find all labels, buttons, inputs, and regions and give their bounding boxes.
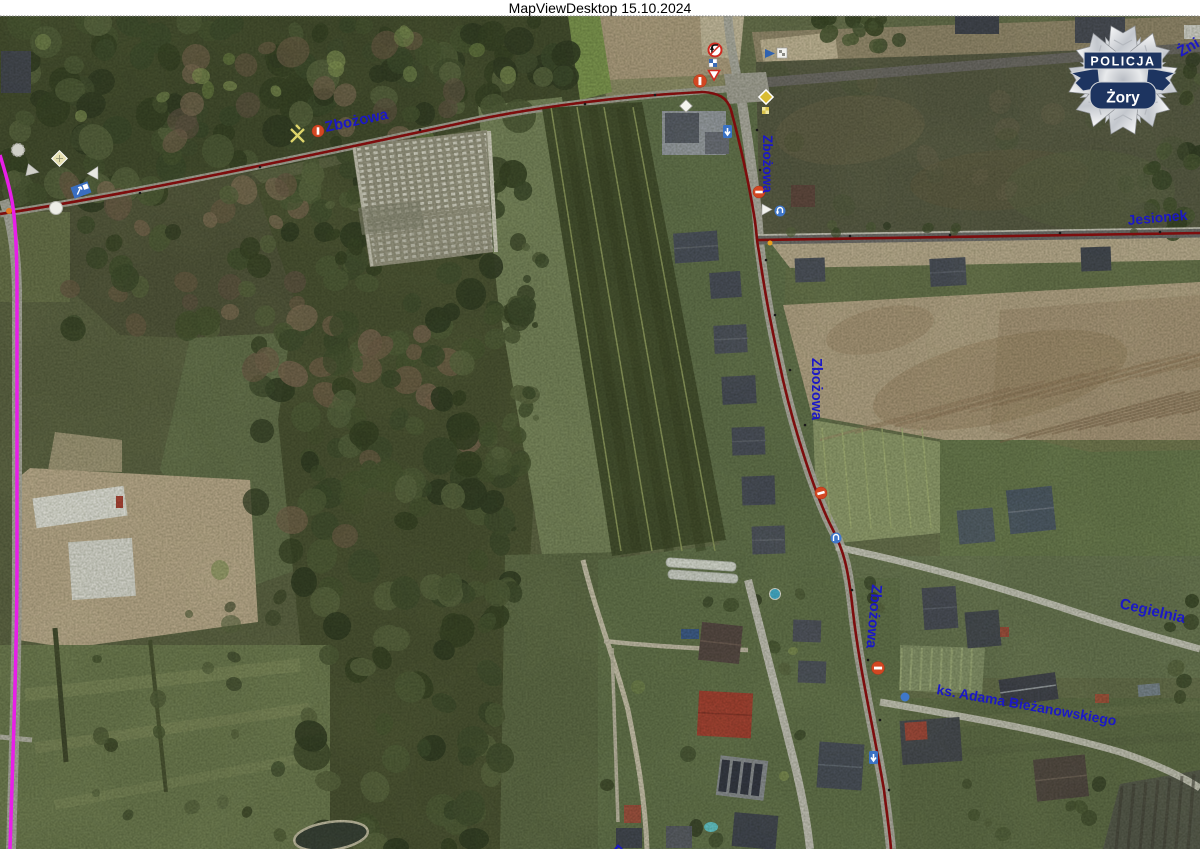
svg-text:MapViewDesktop 15.10.2024: MapViewDesktop 15.10.2024	[509, 0, 692, 16]
svg-text:Zbożowa: Zbożowa	[808, 358, 824, 421]
svg-text:POLICJA: POLICJA	[1090, 55, 1155, 69]
svg-text:Zbożowa: Zbożowa	[760, 135, 775, 193]
svg-text:Żory: Żory	[1106, 90, 1140, 107]
